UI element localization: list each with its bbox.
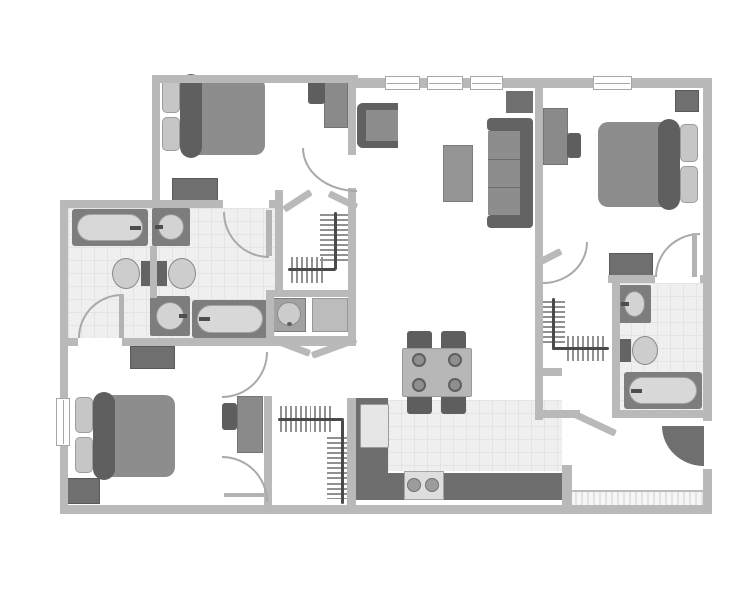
entry-door — [662, 426, 704, 466]
desk-bedroom2-chair — [567, 133, 581, 158]
wall — [150, 246, 157, 298]
faucet-icon — [631, 389, 642, 393]
door-leaf — [224, 493, 264, 497]
wall — [347, 398, 356, 505]
burner-icon — [407, 478, 421, 492]
window-sill — [595, 83, 630, 84]
dining-chair — [441, 394, 466, 414]
wall — [612, 283, 620, 418]
wall — [612, 410, 712, 418]
pillow — [75, 397, 93, 433]
door-leaf — [119, 294, 124, 338]
place-setting — [448, 378, 462, 392]
bedroom1-entry-door-arc — [302, 148, 357, 192]
wall — [60, 505, 712, 514]
wall — [535, 86, 543, 284]
desk-bedroom3-chair — [222, 403, 237, 430]
pillow — [680, 166, 698, 204]
pillow — [162, 79, 180, 113]
nightstand-bedroom3 — [64, 478, 100, 504]
faucet-icon — [155, 225, 163, 229]
bed-bedroom3 — [111, 395, 175, 477]
toilet-2-bowl — [168, 258, 196, 289]
pillow — [75, 437, 93, 473]
dresser-bedroom2 — [609, 253, 653, 277]
wall — [60, 200, 68, 513]
window-sill — [429, 83, 461, 84]
wall — [152, 75, 358, 83]
toilet-2-tank — [156, 261, 167, 286]
dining-chair — [407, 394, 432, 414]
desk-bedroom3 — [237, 396, 263, 453]
door-leaf — [692, 233, 697, 277]
nightstand-bedroom2 — [675, 90, 699, 112]
armchair-armrest — [366, 141, 398, 148]
wall — [608, 275, 655, 283]
sofa-back — [520, 121, 533, 225]
wall — [122, 338, 280, 346]
floor-plan-screenshot — [0, 0, 753, 599]
bed-bedroom1 — [198, 77, 265, 155]
bed-headboard — [180, 74, 202, 158]
wall — [152, 75, 160, 208]
window-sill — [63, 400, 64, 444]
sofa-seam — [488, 159, 520, 160]
wall — [266, 290, 356, 297]
pillow — [680, 124, 698, 162]
wall — [562, 465, 572, 505]
place-setting — [448, 353, 462, 367]
window-sill — [387, 83, 418, 84]
sofa-cushions — [488, 131, 520, 215]
closet1-rod — [288, 268, 336, 271]
bed-headboard — [658, 119, 680, 210]
washer-door-latch — [287, 322, 292, 326]
faucet-icon — [179, 314, 187, 318]
kitchen-counter — [356, 473, 562, 500]
wall — [348, 188, 356, 338]
burner-icon — [425, 478, 439, 492]
wall-diagonal — [282, 189, 313, 212]
floor-plan — [0, 0, 753, 599]
wall — [348, 75, 356, 155]
closet2-rod — [278, 418, 344, 421]
pillow — [162, 117, 180, 151]
window-sill — [472, 83, 501, 84]
desk-bedroom1 — [324, 77, 348, 128]
armchair-armrest — [366, 103, 398, 110]
faucet-icon — [621, 302, 629, 306]
bed-headboard — [93, 392, 115, 480]
faucet-icon — [199, 317, 210, 321]
closet3-rod — [552, 298, 555, 350]
armchair-back — [357, 103, 366, 148]
wall — [60, 338, 78, 346]
dresser-bedroom3 — [130, 346, 175, 369]
faucet-icon — [130, 226, 141, 230]
toilet-1-bowl — [112, 258, 140, 289]
entry-threshold — [563, 490, 703, 505]
wall-diagonal — [572, 410, 618, 436]
closet3-rod — [552, 347, 609, 350]
door-leaf — [266, 210, 272, 256]
tv-stand — [506, 91, 533, 113]
dryer — [312, 298, 348, 332]
hall-door-arc — [543, 242, 588, 284]
refrigerator — [360, 404, 389, 448]
place-setting — [412, 378, 426, 392]
toilet-3-tank — [620, 339, 631, 362]
coffee-table — [443, 145, 473, 202]
sofa-seam — [488, 187, 520, 188]
wall — [535, 283, 543, 420]
desk-bedroom2 — [543, 108, 568, 165]
wall — [700, 275, 712, 283]
closet2-rod — [341, 420, 344, 504]
wall — [60, 200, 223, 208]
place-setting — [412, 353, 426, 367]
bedroom3-door-arc — [222, 352, 268, 398]
wall — [535, 368, 562, 376]
toilet-3-bowl — [632, 336, 658, 365]
closet1-rod — [334, 212, 337, 270]
bed-bedroom2 — [598, 122, 662, 207]
